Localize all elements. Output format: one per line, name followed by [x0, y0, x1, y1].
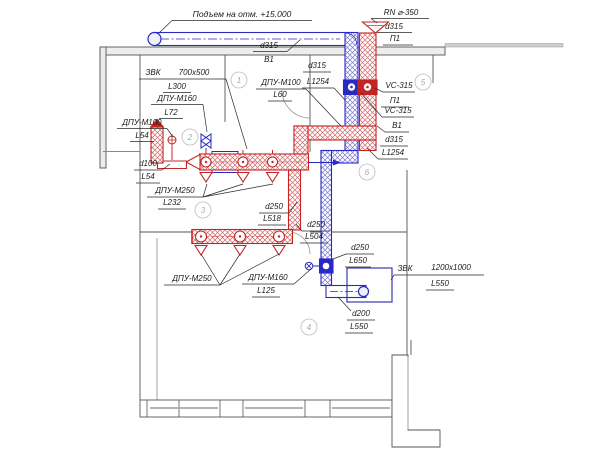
- d315-label: d315: [385, 135, 403, 144]
- room-tag-number: 5: [421, 78, 426, 87]
- zvk-size-label: 700x500: [179, 68, 210, 77]
- zvk-size-label: 1200x1000: [431, 263, 471, 272]
- zvk-label: ЗВК: [146, 68, 162, 77]
- duct-end-cap-icon: [148, 33, 161, 46]
- length-label: L60: [273, 90, 287, 99]
- dpu-m250-label: ДПУ-М250: [171, 274, 212, 283]
- dpu-m250-label: ДПУ-М250: [154, 186, 195, 195]
- length-label: L550: [431, 279, 449, 288]
- length-label: L125: [257, 286, 275, 295]
- length-label: L504: [305, 232, 323, 241]
- d250-label: d250: [351, 243, 369, 252]
- dpu-m160-label: ДПУ-М160: [156, 94, 197, 103]
- vc315-label: VC-315: [384, 106, 412, 115]
- v1-label: В1: [264, 55, 274, 64]
- length-label: L1254: [382, 148, 405, 157]
- supply-lower-riser: [289, 170, 301, 230]
- p1-label: П1: [390, 34, 400, 43]
- length-label: L300: [168, 82, 186, 91]
- length-label: L72: [164, 108, 178, 117]
- room-tag-number: 1: [237, 76, 241, 85]
- rise-note: Подъем на отм. +15.000: [193, 9, 292, 19]
- length-label: L650: [349, 256, 367, 265]
- room-tag-number: 2: [187, 133, 193, 142]
- rn-label: RN ⌀-350: [384, 8, 419, 17]
- dpu-m160-label: ДПУ-М160: [247, 273, 288, 282]
- length-label: L518: [263, 214, 281, 223]
- drawing-canvas: Подъем на отм. +15.000 RN ⌀-350 d315 П1 …: [0, 0, 600, 450]
- top-right-wall: [445, 44, 563, 48]
- zvk-label: ЗВК: [398, 264, 414, 273]
- duct-end-cap-icon: [359, 287, 369, 297]
- d315-label: d315: [308, 61, 326, 70]
- length-label: L54: [135, 131, 149, 140]
- length-label: L550: [350, 322, 368, 331]
- supply-drop: [294, 126, 308, 156]
- p1-label: П1: [390, 96, 400, 105]
- dpu-m100-label: ДПУ-М100: [121, 118, 162, 127]
- gate-valve-icon: [201, 134, 211, 148]
- v1-label: В1: [392, 121, 402, 130]
- left-wall: [100, 47, 106, 168]
- d100-branch-riser: [151, 127, 163, 163]
- d200-label: d200: [352, 309, 370, 318]
- d100-label: d100: [139, 159, 157, 168]
- corner-column: [392, 355, 440, 447]
- damper-valve-icon: [322, 262, 330, 270]
- reducer-cone-icon: [186, 155, 200, 170]
- vc315-label: VC-315: [385, 81, 413, 90]
- ventilation-plan-drawing: Подъем на отм. +15.000 RN ⌀-350 d315 П1 …: [0, 0, 600, 450]
- d250-label: d250: [265, 202, 283, 211]
- dpu-m100-label: ДПУ-М100: [260, 78, 301, 87]
- room-tag-number: 4: [307, 323, 312, 332]
- room-tag-number: 6: [365, 168, 370, 177]
- d315-label: d315: [260, 41, 278, 50]
- vc-valve-icon: [350, 86, 353, 89]
- d250-label: d250: [307, 220, 325, 229]
- length-label: L232: [163, 198, 181, 207]
- d315-label: d315: [385, 22, 403, 31]
- length-label: L54: [141, 172, 155, 181]
- vc-valve-icon: [366, 86, 369, 89]
- length-label: L1254: [307, 77, 330, 86]
- room-tag-number: 3: [201, 206, 206, 215]
